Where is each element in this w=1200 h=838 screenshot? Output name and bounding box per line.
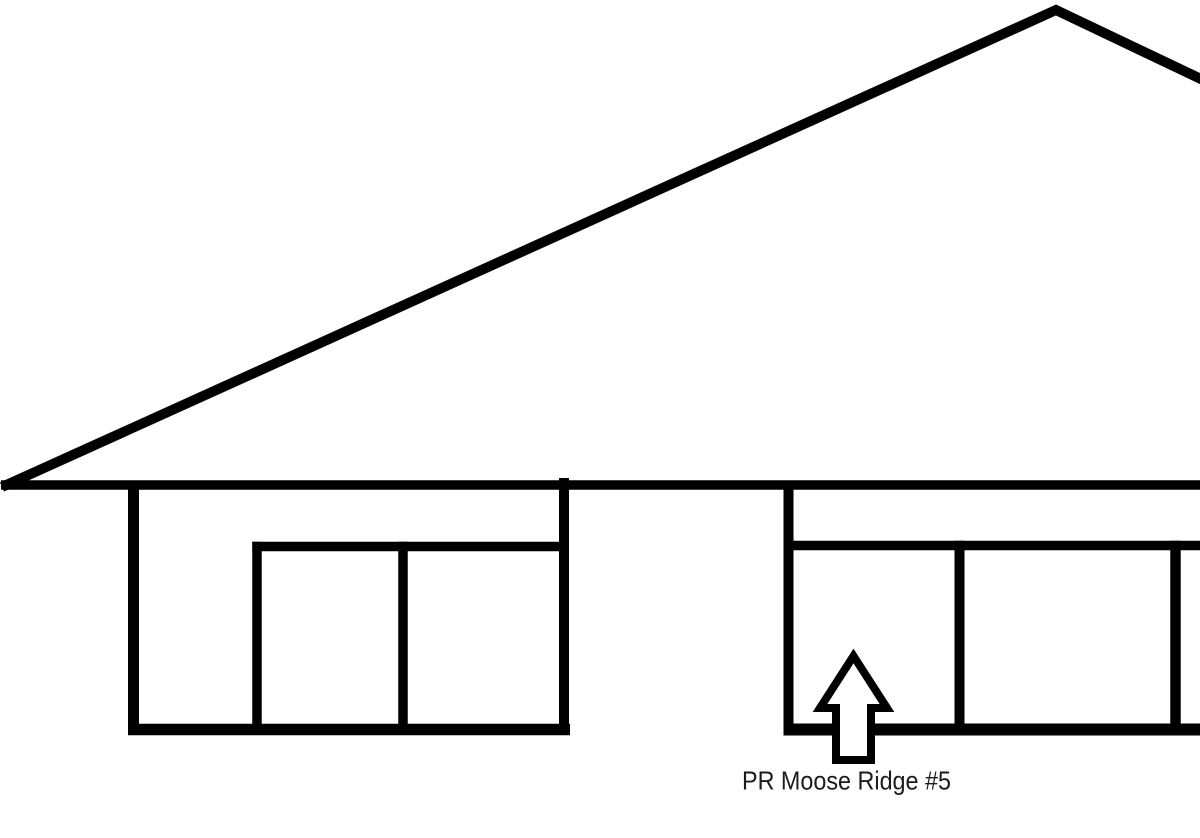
- svg-text:PR Moose Ridge #5: PR Moose Ridge #5: [742, 766, 951, 796]
